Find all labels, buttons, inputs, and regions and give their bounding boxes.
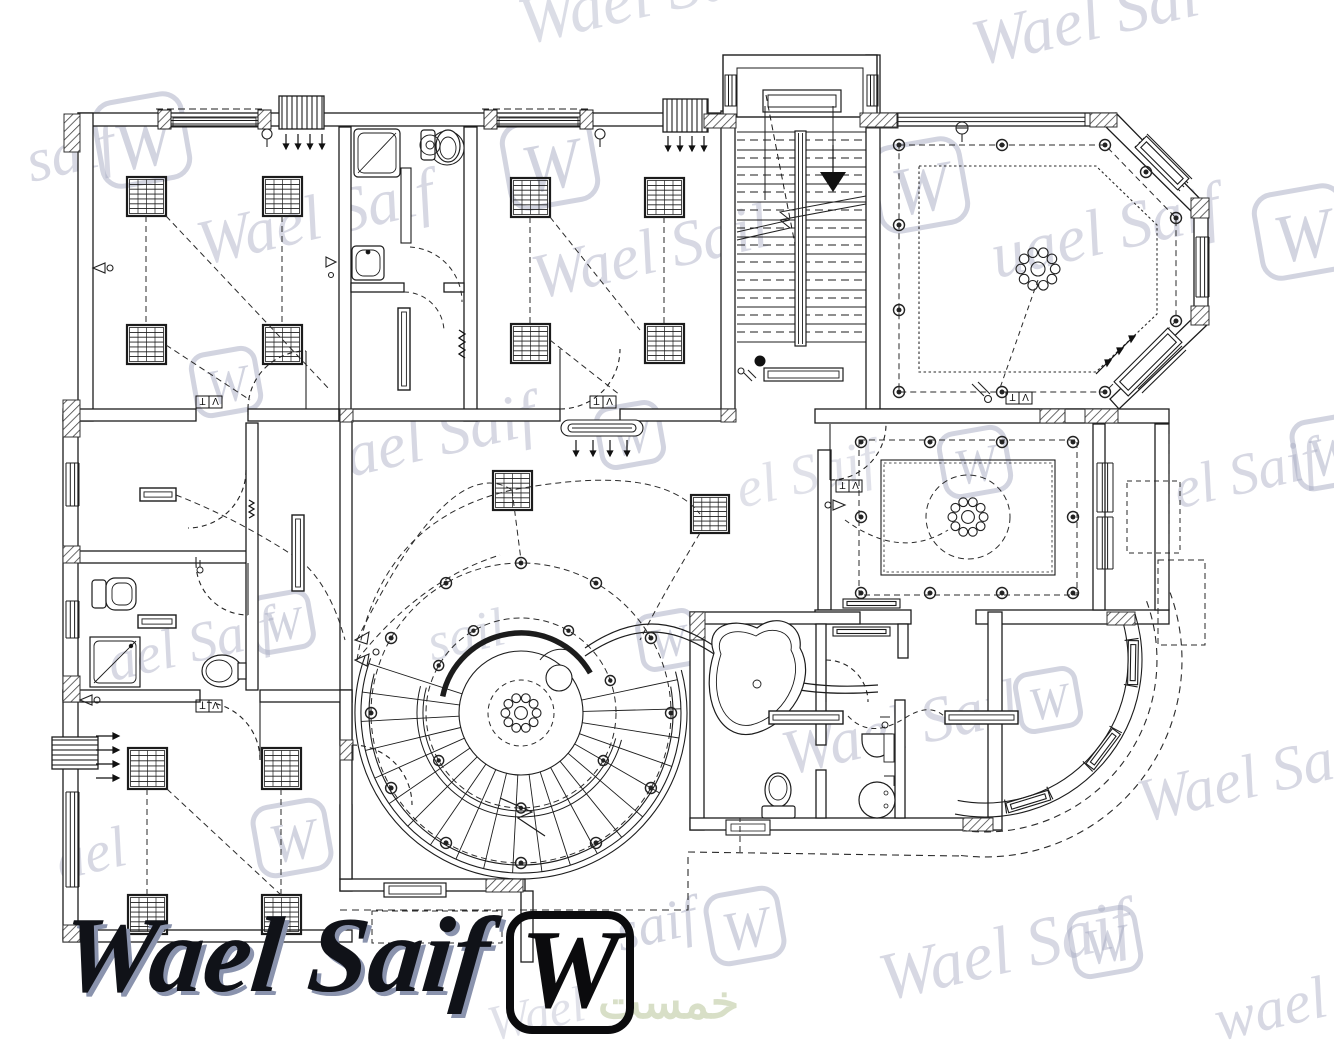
svg-text:W: W (1268, 193, 1334, 279)
svg-text:V: V (1022, 391, 1029, 402)
svg-text:خمست: خمست (598, 976, 739, 1028)
svg-text:T: T (199, 395, 205, 406)
svg-text:T: T (839, 479, 845, 490)
svg-text:V: V (852, 479, 859, 490)
svg-text:V: V (606, 395, 613, 406)
svg-text:V: V (212, 395, 219, 406)
svg-text:T: T (199, 699, 205, 710)
svg-text:T: T (1009, 391, 1015, 402)
